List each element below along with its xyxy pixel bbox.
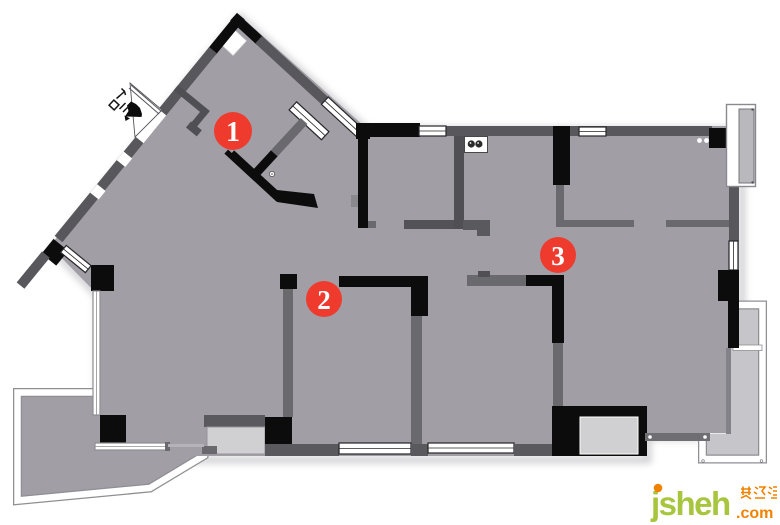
- svg-text:3: 3: [551, 241, 565, 271]
- svg-text:2: 2: [317, 285, 331, 315]
- svg-text:jsheh: jsheh: [650, 485, 730, 522]
- svg-text:1: 1: [226, 117, 240, 148]
- svg-text:.com: .com: [736, 505, 773, 522]
